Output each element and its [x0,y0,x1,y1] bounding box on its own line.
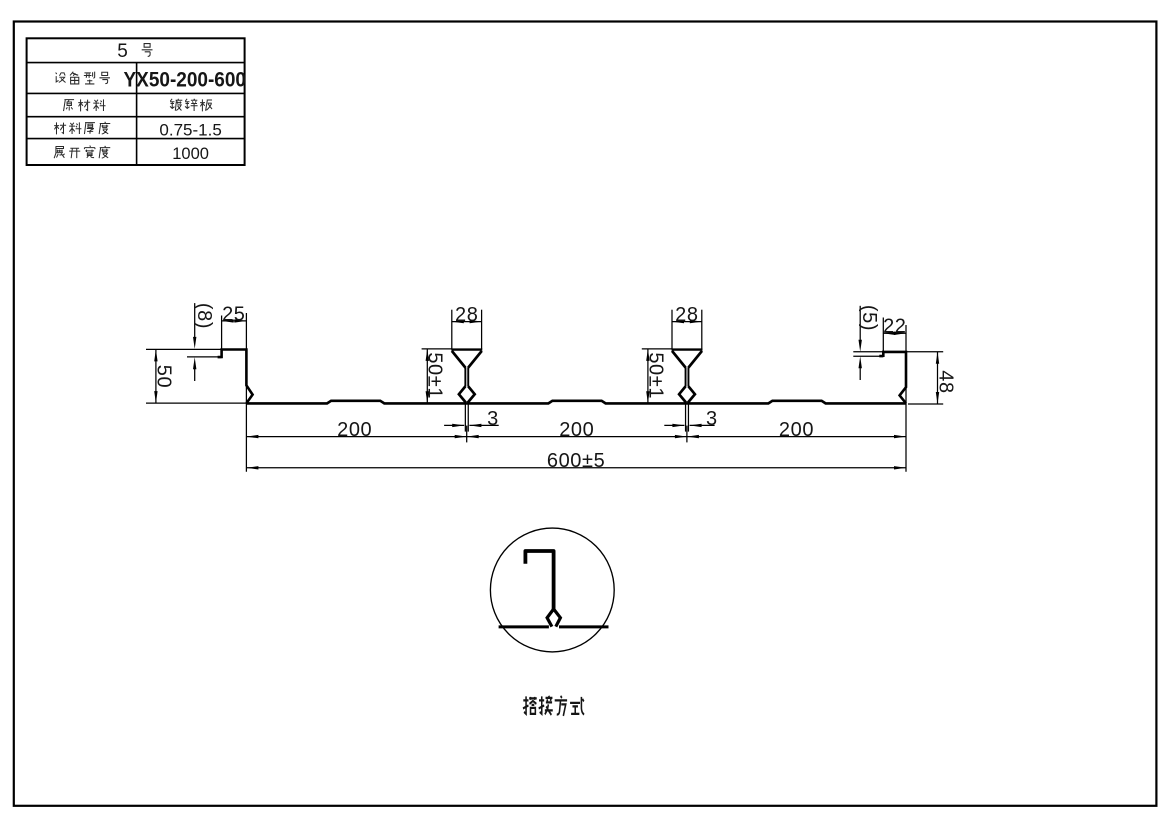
svg-text:50: 50 [153,365,175,388]
svg-text:200: 200 [779,419,814,441]
svg-text:50±1: 50±1 [644,352,666,399]
svg-text:YX50-200-600: YX50-200-600 [124,67,247,91]
svg-text:(8): (8) [193,303,215,329]
svg-text:28: 28 [455,304,478,326]
svg-text:3: 3 [706,408,718,430]
svg-text:0.75-1.5: 0.75-1.5 [159,121,221,140]
svg-text:22: 22 [883,316,906,338]
svg-text:3: 3 [487,408,499,430]
svg-text:200: 200 [559,419,594,441]
svg-text:(5): (5) [858,305,880,331]
svg-text:28: 28 [675,304,698,326]
svg-text:200: 200 [337,419,372,441]
svg-text:600±5: 600±5 [547,450,605,472]
svg-text:25: 25 [222,303,245,325]
svg-text:48: 48 [935,370,957,393]
svg-text:50±1: 50±1 [424,352,446,399]
svg-text:5: 5 [117,41,128,62]
svg-text:1000: 1000 [172,145,209,163]
